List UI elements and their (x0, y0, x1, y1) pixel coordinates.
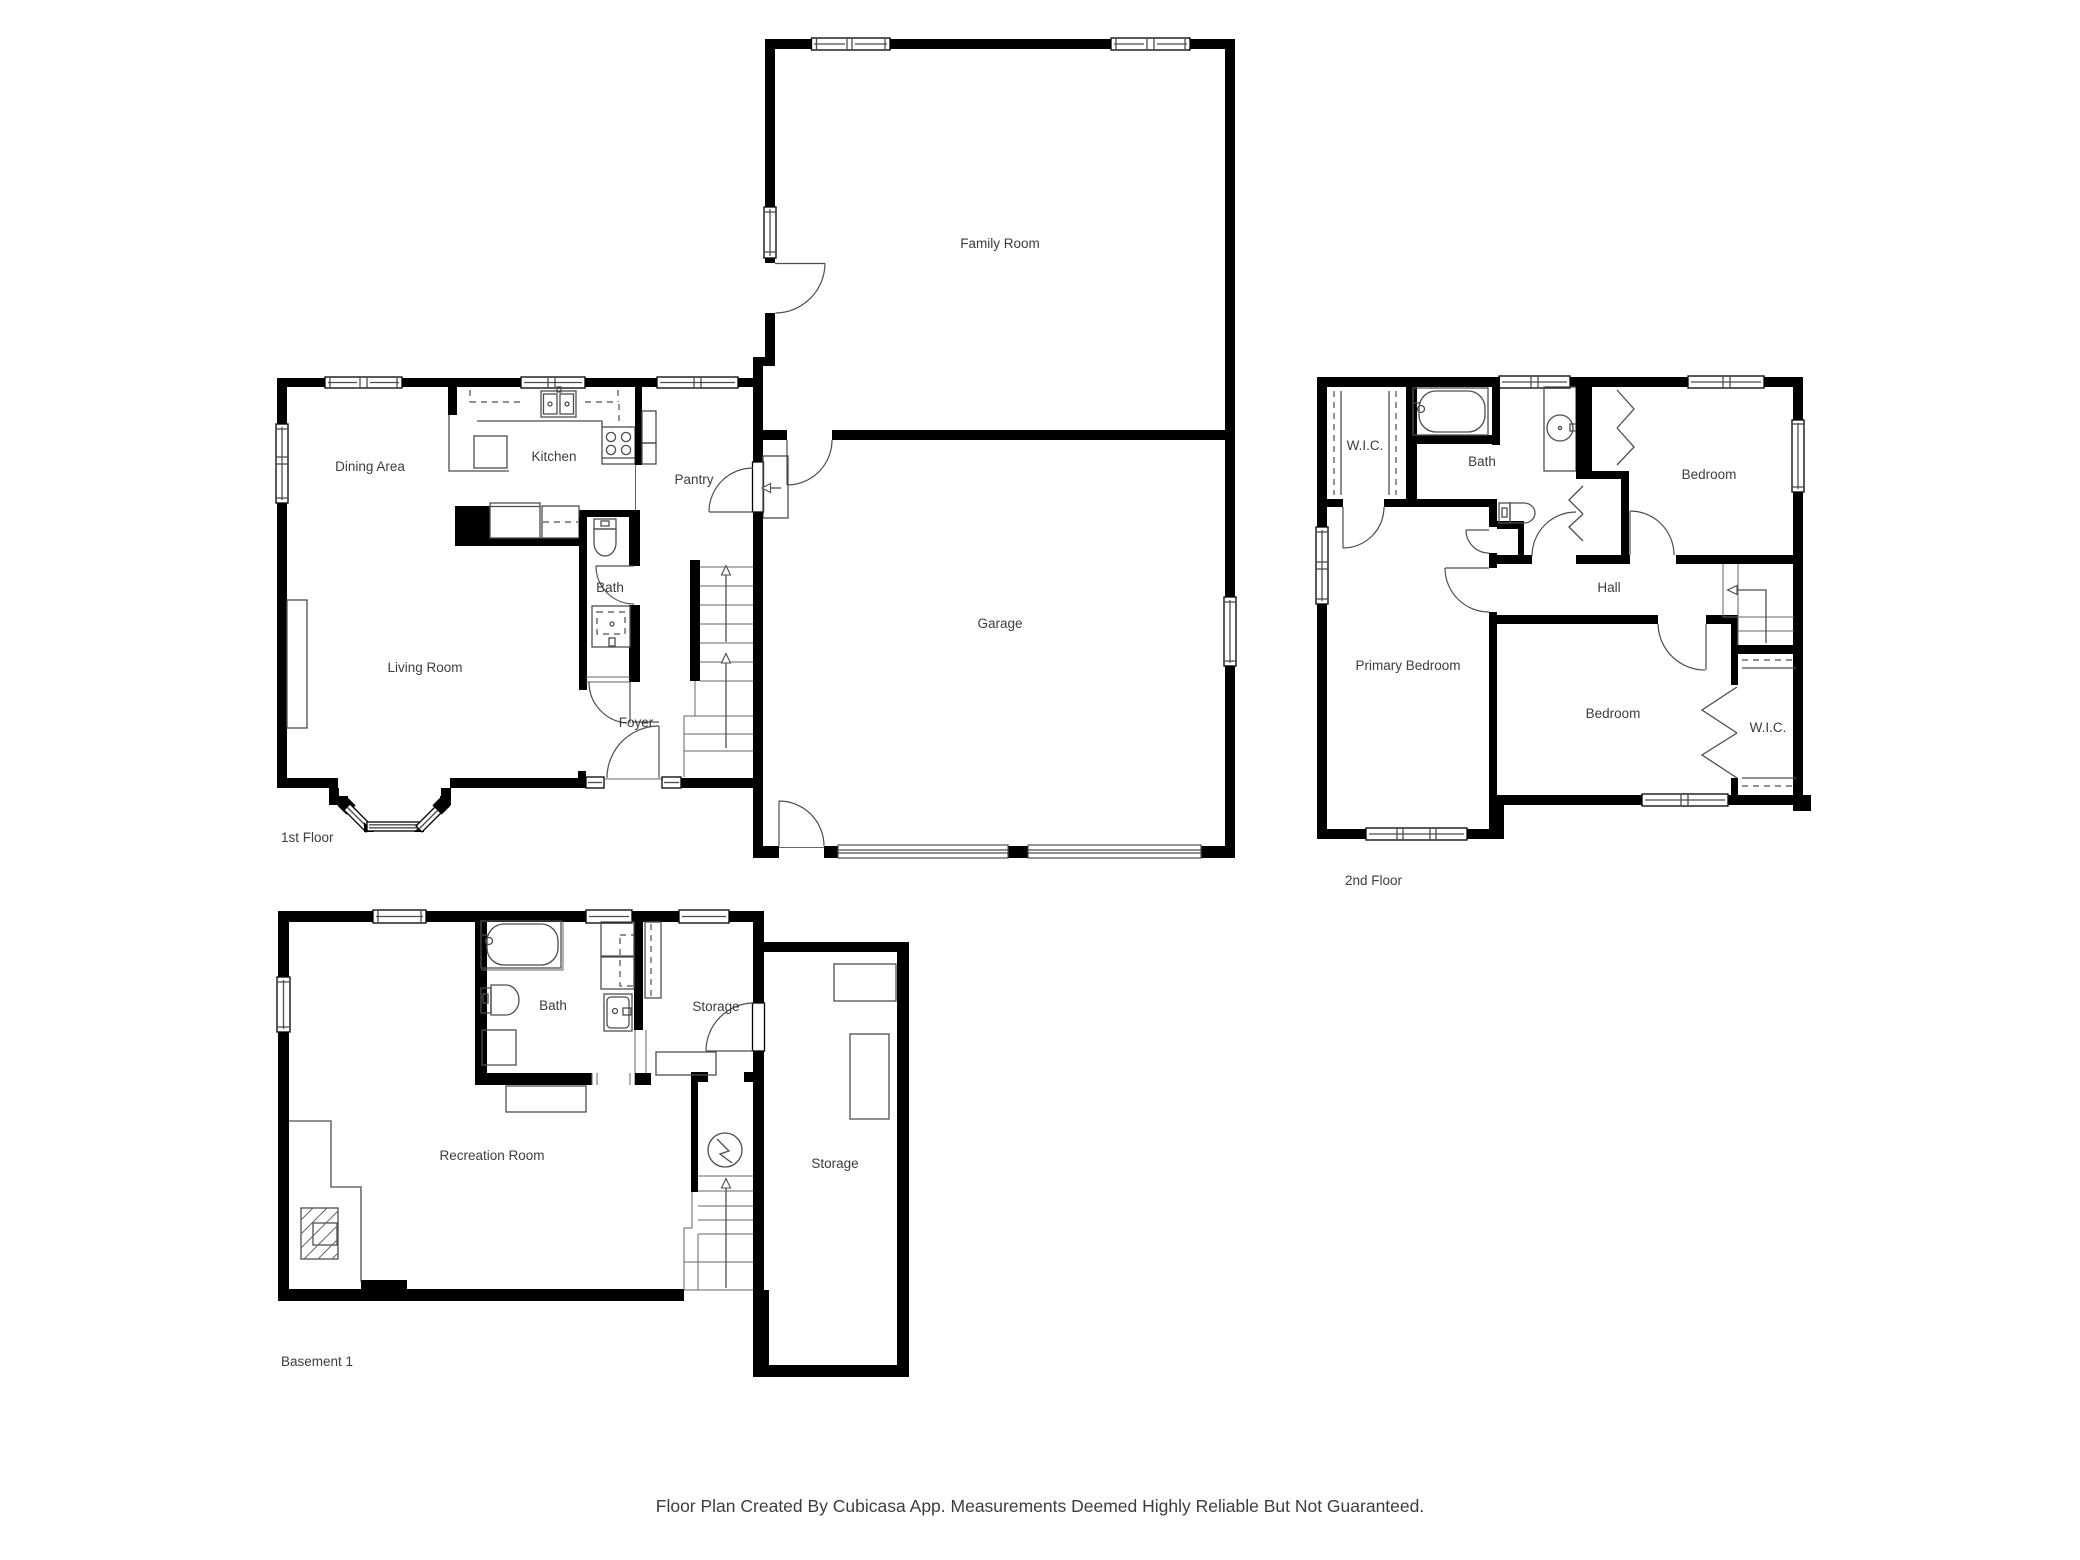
svg-text:Family Room: Family Room (960, 236, 1040, 251)
svg-text:Storage: Storage (692, 999, 739, 1014)
svg-text:Basement 1: Basement 1 (281, 1354, 353, 1369)
svg-text:Kitchen: Kitchen (531, 449, 576, 464)
svg-text:Hall: Hall (1597, 580, 1620, 595)
svg-text:Bath: Bath (539, 998, 567, 1013)
svg-text:Bath: Bath (1468, 454, 1496, 469)
svg-text:Bedroom: Bedroom (1586, 706, 1641, 721)
svg-text:Bath: Bath (596, 580, 624, 595)
svg-text:Recreation Room: Recreation Room (439, 1148, 544, 1163)
svg-text:Dining Area: Dining Area (335, 459, 405, 474)
svg-text:2nd Floor: 2nd Floor (1345, 873, 1403, 888)
svg-text:Storage: Storage (811, 1156, 858, 1171)
svg-text:Floor Plan Created By Cubicasa: Floor Plan Created By Cubicasa App. Meas… (656, 1496, 1424, 1516)
svg-text:Foyer: Foyer (619, 715, 654, 730)
svg-text:Primary Bedroom: Primary Bedroom (1355, 658, 1460, 673)
svg-text:Garage: Garage (977, 616, 1022, 631)
svg-text:Bedroom: Bedroom (1682, 467, 1737, 482)
svg-text:Living Room: Living Room (387, 660, 462, 675)
svg-text:1st Floor: 1st Floor (281, 830, 334, 845)
svg-text:W.I.C.: W.I.C. (1750, 720, 1787, 735)
svg-text:W.I.C.: W.I.C. (1347, 438, 1384, 453)
svg-text:Pantry: Pantry (674, 472, 713, 487)
